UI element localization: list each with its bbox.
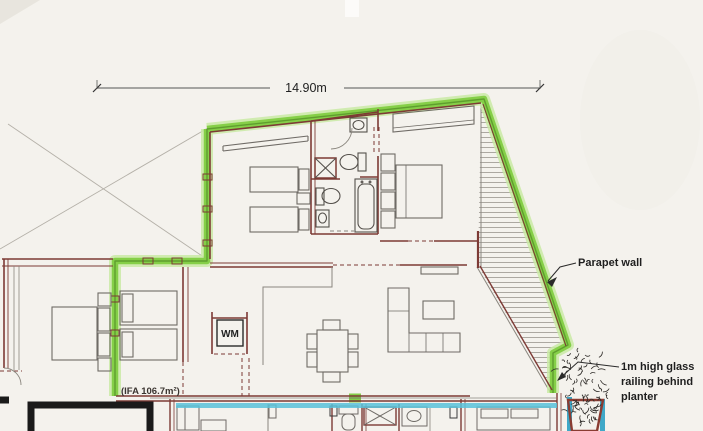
strip-bed [477, 407, 550, 430]
bedroom1-closet [223, 136, 308, 151]
railing-label-line3: planter [621, 391, 658, 403]
floor-plan-page: WM [0, 0, 703, 431]
bedroom2-furniture [381, 106, 474, 228]
living-furniture [307, 267, 460, 382]
bedroom1-nightstand [297, 193, 310, 204]
shaft-x-box [315, 158, 336, 178]
bedroom2-bed [396, 165, 442, 218]
strip-shaft-x-box [364, 407, 396, 425]
glass-railing-label: 1m high glass railing behind planter [621, 361, 694, 403]
heavy-black-wall [0, 400, 150, 431]
bathroom-fixtures [315, 118, 377, 232]
bedroom1-bed-1 [250, 167, 309, 192]
dashed-door-openings [0, 127, 434, 396]
strip-door-frame-2 [450, 407, 457, 418]
sink-icon-2 [316, 210, 329, 227]
middle-bed-1 [120, 291, 177, 325]
middle-bed-2 [120, 329, 177, 360]
bedroom1-bed-2 [250, 207, 309, 232]
railing-label-line2: railing behind [621, 376, 693, 388]
interior-gray-lines [4, 266, 556, 398]
wm-label: WM [221, 329, 239, 340]
strip-cabinet [177, 406, 199, 430]
strip-toilet [339, 406, 358, 430]
railing-label-line1: 1m high glass [621, 361, 694, 373]
toilet-icon-2 [316, 188, 340, 205]
sideboard [421, 267, 458, 274]
coffee-table [423, 301, 454, 319]
glass-railing-cyan [176, 403, 557, 408]
sink-icon [350, 118, 367, 132]
strip-box [201, 420, 226, 431]
paper-artifacts [0, 0, 700, 210]
construction-cross-lines [0, 124, 213, 262]
toilet-icon-1 [340, 153, 366, 171]
sofa-l-shape [388, 288, 460, 352]
bedroom1-furniture [223, 136, 310, 232]
bathtub-icon [355, 179, 377, 232]
ifa-area-label: (IFA 106.7m²) [121, 386, 180, 397]
parapet-wall-label: Parapet wall [578, 257, 642, 269]
left-bedroom-bed [52, 307, 97, 360]
dining-table-set [307, 320, 358, 382]
bedroom2-headboard [381, 154, 395, 228]
middle-bedroom-furniture [120, 291, 177, 360]
left-bedroom-furniture [52, 293, 111, 371]
dimension-label: 14.90m [285, 81, 327, 95]
floor-plan-drawing: WM [0, 0, 703, 431]
lower-floor-strip [170, 393, 561, 431]
washing-machine: WM [217, 320, 243, 346]
strip-sink [402, 407, 427, 426]
planter [551, 348, 609, 431]
door-swing-arc [331, 128, 352, 149]
